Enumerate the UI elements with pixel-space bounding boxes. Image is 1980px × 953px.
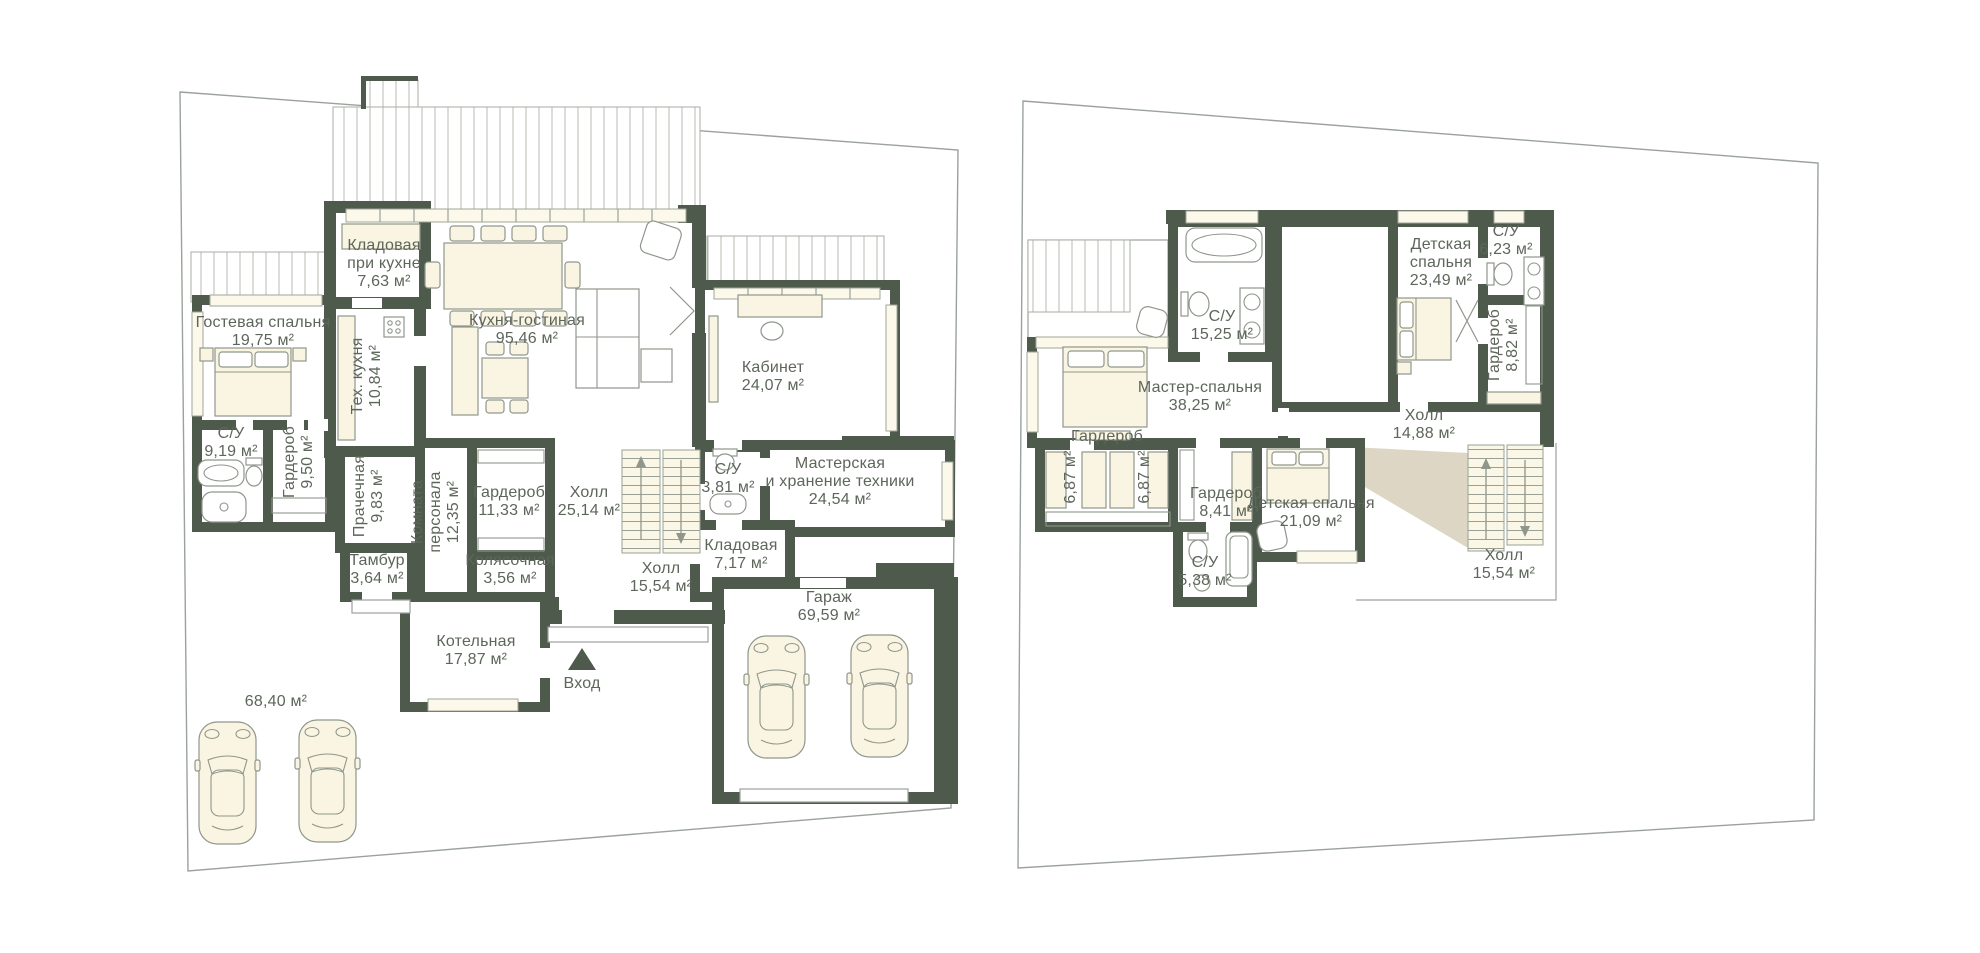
- svg-text:24,07 м²: 24,07 м²: [742, 377, 805, 394]
- entrance-porch: [548, 627, 708, 642]
- svg-text:Тех. кухня: Тех. кухня: [349, 338, 366, 415]
- label-tambour: Тамбур: [349, 552, 405, 569]
- svg-text:6,87 м²: 6,87 м²: [1062, 450, 1079, 504]
- svg-text:17,87 м²: 17,87 м²: [445, 651, 508, 668]
- svg-text:7,17 м²: 7,17 м²: [714, 555, 768, 572]
- svg-text:Гардероб: Гардероб: [281, 426, 298, 498]
- svg-text:персонала: персонала: [427, 471, 444, 552]
- label-hall-main: Холл: [570, 484, 609, 501]
- svg-text:и хранение техники: и хранение техники: [765, 473, 914, 490]
- svg-text:95,46 м²: 95,46 м²: [496, 330, 559, 347]
- svg-text:спальня: спальня: [1410, 254, 1472, 271]
- side-porch: [352, 600, 410, 613]
- svg-text:23,49 м²: 23,49 м²: [1410, 272, 1473, 289]
- svg-text:7,63 м²: 7,63 м²: [357, 273, 411, 290]
- garage-car-2-icon: [847, 635, 912, 757]
- label-cabinet: Кабинет: [742, 359, 805, 376]
- dining-table-icon: [425, 226, 580, 326]
- label-entrance: Вход: [564, 675, 601, 692]
- label-hall2: Холл: [1405, 407, 1444, 424]
- label-guest-bath: С/У: [218, 425, 245, 442]
- first-floor-plan: Кладовая при кухне 7,63 м² Тех. кухня 10…: [180, 76, 958, 871]
- label-storage: Кладовая: [704, 537, 777, 554]
- staircase-floor2: [1468, 445, 1543, 551]
- svg-text:Прачечная: Прачечная: [351, 455, 368, 537]
- svg-text:Гардероб: Гардероб: [1486, 309, 1503, 381]
- label-stroller-room: Колясочная: [465, 552, 554, 569]
- svg-text:10,84 м²: 10,84 м²: [367, 344, 384, 407]
- label-yard-area: 68,40 м²: [245, 693, 308, 710]
- svg-text:5,38 м²: 5,38 м²: [1178, 572, 1232, 589]
- svg-text:3,56 м²: 3,56 м²: [483, 570, 537, 587]
- svg-text:15,54 м²: 15,54 м²: [1473, 565, 1536, 582]
- svg-text:6,87 м²: 6,87 м²: [1136, 450, 1153, 504]
- svg-text:9,50 м²: 9,50 м²: [299, 435, 316, 489]
- second-floor-plan: С/У 15,25 м² Мастер-спальня 38,25 м² Гар…: [1018, 101, 1818, 868]
- label-hall-stairs2: Холл: [1485, 547, 1524, 564]
- svg-text:при кухне: при кухне: [347, 255, 421, 272]
- svg-text:24,54 м²: 24,54 м²: [809, 491, 872, 508]
- svg-text:15,25 м²: 15,25 м²: [1191, 326, 1254, 343]
- label-pantry-kitchen: Кладовая: [347, 237, 420, 254]
- label-guest-wardrobe: Гардероб 9,50 м²: [281, 426, 316, 498]
- svg-text:69,59 м²: 69,59 м²: [798, 607, 861, 624]
- label-master-wardrobe: Гардероб: [1071, 428, 1143, 445]
- label-guest-bedroom: Гостевая спальня: [196, 314, 331, 331]
- label-workshop: Мастерская: [795, 455, 885, 472]
- label-tech-kitchen: Тех. кухня 10,84 м²: [349, 338, 384, 415]
- label-master-bedroom: Мастер-спальня: [1138, 379, 1262, 396]
- label-hall-entry: Холл: [642, 560, 681, 577]
- label-kids-wardrobe1: Гардероб 8,82 м²: [1486, 309, 1521, 381]
- svg-text:8,41 м²: 8,41 м²: [1199, 503, 1253, 520]
- label-kids-bath1: С/У: [1493, 223, 1520, 240]
- svg-text:6,23 м²: 6,23 м²: [1479, 241, 1533, 258]
- yard-car-1-icon: [195, 722, 260, 844]
- entrance-arrow-icon: [568, 648, 596, 670]
- svg-text:15,54 м²: 15,54 м²: [630, 578, 693, 595]
- label-staff-room: Комната персонала 12,35 м²: [409, 471, 462, 552]
- svg-text:21,09 м²: 21,09 м²: [1280, 513, 1343, 530]
- label-garage: Гараж: [806, 589, 852, 606]
- label-master-bath: С/У: [1209, 308, 1236, 325]
- floor-plans-canvas: Кладовая при кухне 7,63 м² Тех. кухня 10…: [0, 0, 1980, 953]
- label-hall-bath: С/У: [715, 461, 742, 478]
- label-kids-bath2: С/У: [1192, 554, 1219, 571]
- svg-text:38,25 м²: 38,25 м²: [1169, 397, 1232, 414]
- svg-text:14,88 м²: 14,88 м²: [1393, 425, 1456, 442]
- svg-text:3,81 м²: 3,81 м²: [701, 479, 755, 496]
- label-kids-bedroom2: Детская спальня: [1247, 495, 1374, 512]
- label-kitchen-living: Кухня-гостиная: [469, 312, 585, 329]
- svg-text:19,75 м²: 19,75 м²: [232, 332, 295, 349]
- svg-text:9,19 м²: 9,19 м²: [204, 443, 258, 460]
- garage-car-1-icon: [744, 636, 809, 758]
- svg-text:Комната: Комната: [409, 480, 426, 544]
- svg-text:11,33 м²: 11,33 м²: [478, 502, 540, 519]
- yard-car-2-icon: [295, 720, 360, 842]
- label-wardrobe-main: Гардероб: [473, 484, 545, 501]
- garage-door: [740, 789, 908, 802]
- master-bed-icon: [1063, 347, 1147, 440]
- guest-bed-icon: [200, 348, 306, 416]
- label-boiler-room: Котельная: [436, 633, 515, 650]
- svg-text:9,83 м²: 9,83 м²: [369, 469, 386, 523]
- svg-text:8,82 м²: 8,82 м²: [1504, 318, 1521, 372]
- staircase-floor1: [622, 450, 700, 553]
- svg-text:25,14 м²: 25,14 м²: [558, 502, 621, 519]
- svg-text:3,64 м²: 3,64 м²: [350, 570, 404, 587]
- label-kids-bedroom1: Детская: [1411, 236, 1472, 253]
- floor-plan-page: Кладовая при кухне 7,63 м² Тех. кухня 10…: [0, 0, 1980, 953]
- svg-text:12,35 м²: 12,35 м²: [445, 480, 462, 543]
